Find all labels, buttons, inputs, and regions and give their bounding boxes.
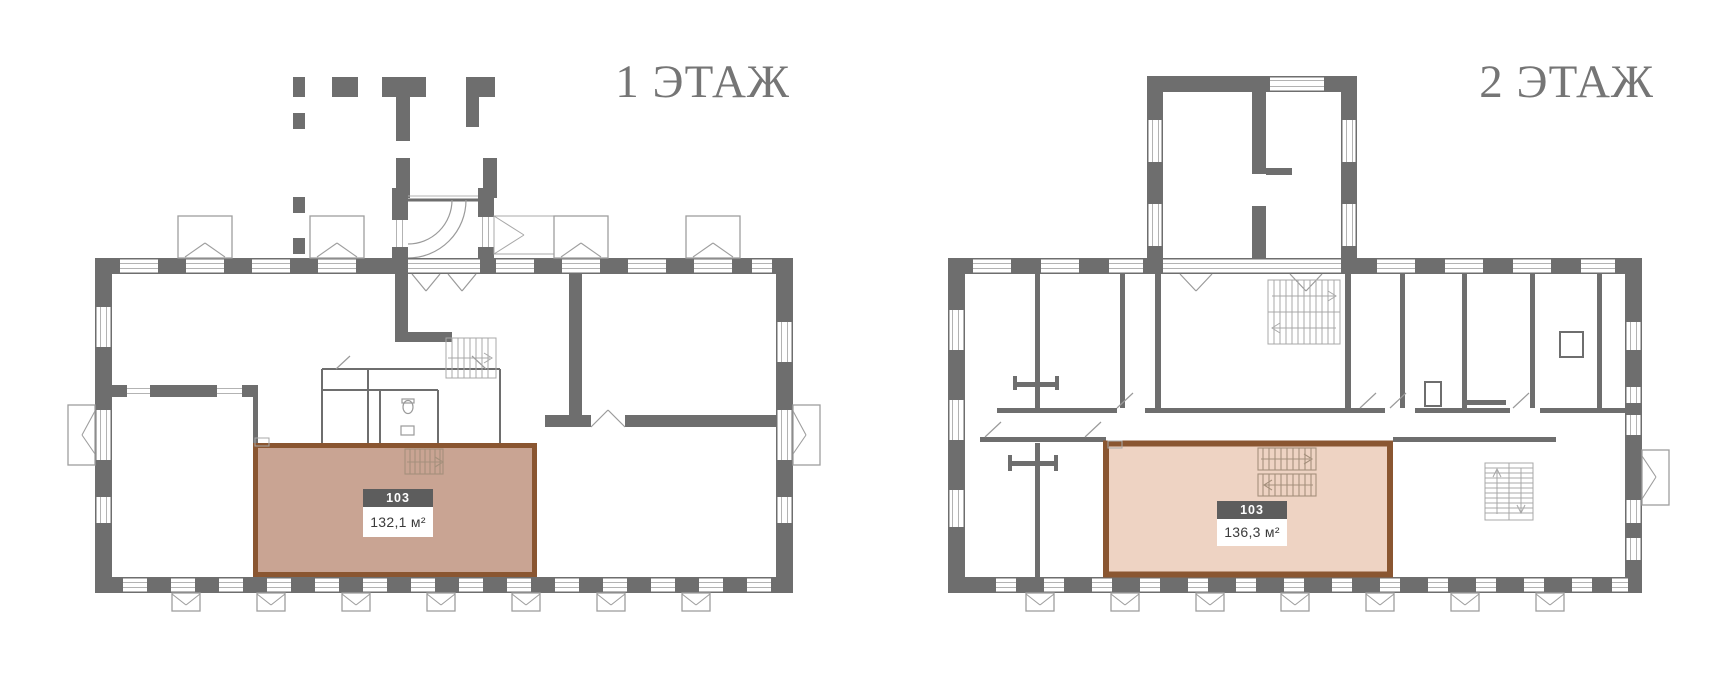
- floor2-fire-staircase: [1485, 463, 1533, 520]
- sink-icon: [401, 426, 414, 435]
- room-area-value: 132,1 м²: [363, 507, 433, 537]
- room-label-floor-1: 103 132,1 м²: [363, 489, 433, 537]
- room-area-value: 136,3 м²: [1217, 519, 1287, 546]
- floor-2-title: 2 ЭТАЖ: [1462, 56, 1654, 108]
- room-label-floor-2: 103 136,3 м²: [1217, 501, 1287, 546]
- floor-1-title: 1 ЭТАЖ: [598, 56, 790, 108]
- floor1-main-staircase: [446, 338, 496, 378]
- floor1-interior-walls: [105, 274, 776, 443]
- floor-plan-1: [68, 77, 820, 611]
- room-number-badge: 103: [363, 489, 433, 507]
- floor1-bathroom-cluster: [322, 356, 500, 443]
- floor-plans-page: 1 ЭТАЖ 2 ЭТАЖ 103 132,1 м² 103 136,3 м²: [0, 0, 1733, 684]
- floor2-tower: [1147, 76, 1357, 258]
- room-number-badge: 103: [1217, 501, 1287, 519]
- floor-plan-2: [948, 76, 1669, 611]
- floor2-main-staircase: [1268, 280, 1340, 344]
